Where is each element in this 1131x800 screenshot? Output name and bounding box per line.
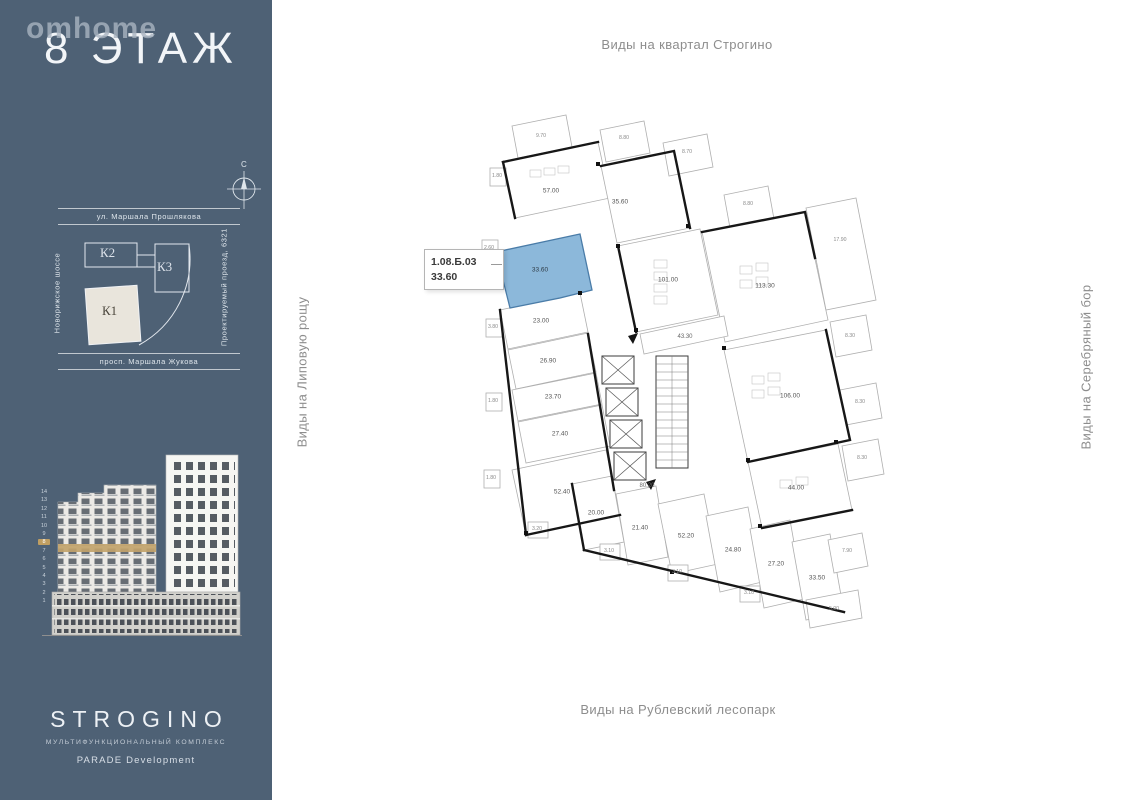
floor-number: 10 (38, 523, 50, 529)
project-subtitle: МУЛЬТИФУНКЦИОНАЛЬНЫЙ КОМПЛЕКС (0, 739, 272, 746)
site-map (75, 235, 225, 350)
elevation-floor-numbers: 1413121110987654321 (38, 489, 50, 606)
callout-leader-line (491, 264, 502, 265)
building-elevation (28, 447, 248, 639)
floor-plan-drawing (440, 90, 910, 660)
compass-icon: С (222, 156, 266, 212)
view-label-north: Виды на квартал Строгино (537, 37, 837, 52)
street-label-top: ул. Маршала Прошлякова (58, 208, 240, 225)
floor-number: 1 (38, 598, 50, 604)
building-k3-label: К3 (157, 259, 172, 275)
project-name: STROGINO (0, 706, 272, 733)
floor-number: 14 (38, 489, 50, 495)
unit-callout[interactable]: 1.08.Б.03 33.60 (424, 249, 504, 290)
stairwell (656, 356, 688, 468)
building-k2-label: К2 (100, 245, 115, 261)
view-label-south: Виды на Рублевский лесопарк (528, 702, 828, 717)
floor-number: 9 (38, 531, 50, 537)
floor-number: 13 (38, 497, 50, 503)
floor-plan: 57.0035.60101.00113.30106.0044.0033.6023… (440, 90, 910, 660)
floor-number: 6 (38, 556, 50, 562)
sidebar: omhome 8 ЭТАЖ С ул. Маршала Прошлякова Н… (0, 0, 272, 800)
compass-north-label: С (241, 160, 247, 169)
floor-number: 5 (38, 565, 50, 571)
floor-number: 4 (38, 573, 50, 579)
unit-id: 1.08.Б.03 (431, 255, 497, 270)
floor-number-current: 8 (38, 539, 50, 545)
developer-name: PARADE Development (0, 755, 272, 766)
building-k1-label: К1 (102, 303, 117, 319)
street-label-bottom: просп. Маршала Жукова (58, 353, 240, 370)
floor-number: 11 (38, 514, 50, 520)
floor-number: 3 (38, 581, 50, 587)
floor-number: 2 (38, 590, 50, 596)
floor-number: 12 (38, 506, 50, 512)
highlighted-floor-band (58, 544, 156, 552)
unit-area: 33.60 (431, 270, 497, 285)
floor-number: 7 (38, 548, 50, 554)
omhome-logo: omhome (26, 12, 157, 46)
brand-block: STROGINO МУЛЬТИФУНКЦИОНАЛЬНЫЙ КОМПЛЕКС P… (0, 706, 272, 766)
